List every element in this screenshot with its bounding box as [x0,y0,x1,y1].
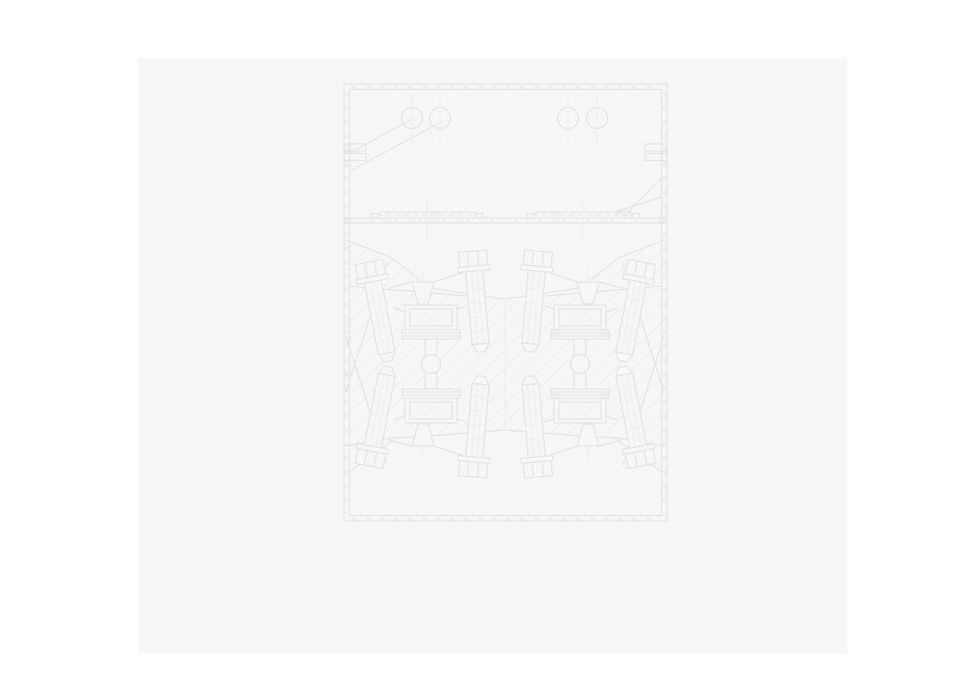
plate-stack [551,389,609,398]
pivot-stem [425,339,437,355]
drawing-root [138,58,847,653]
plate-stack [402,389,460,398]
rail-end-nub [527,214,534,219]
pivot-stem [574,339,586,355]
pivot-stem [574,373,586,389]
pivot-circle [571,355,590,374]
pivot-circle [422,355,441,374]
cad-drawing-canvas [0,0,961,694]
pivot-stem [425,373,437,389]
rail-end-nub [371,214,378,219]
rail-end-nub [476,214,483,219]
plate-stack [551,330,609,339]
desktop-background: { "window": { "width": 961, "height": 69… [0,0,961,694]
rail-end-nub [632,214,639,219]
plate-stack [402,330,460,339]
